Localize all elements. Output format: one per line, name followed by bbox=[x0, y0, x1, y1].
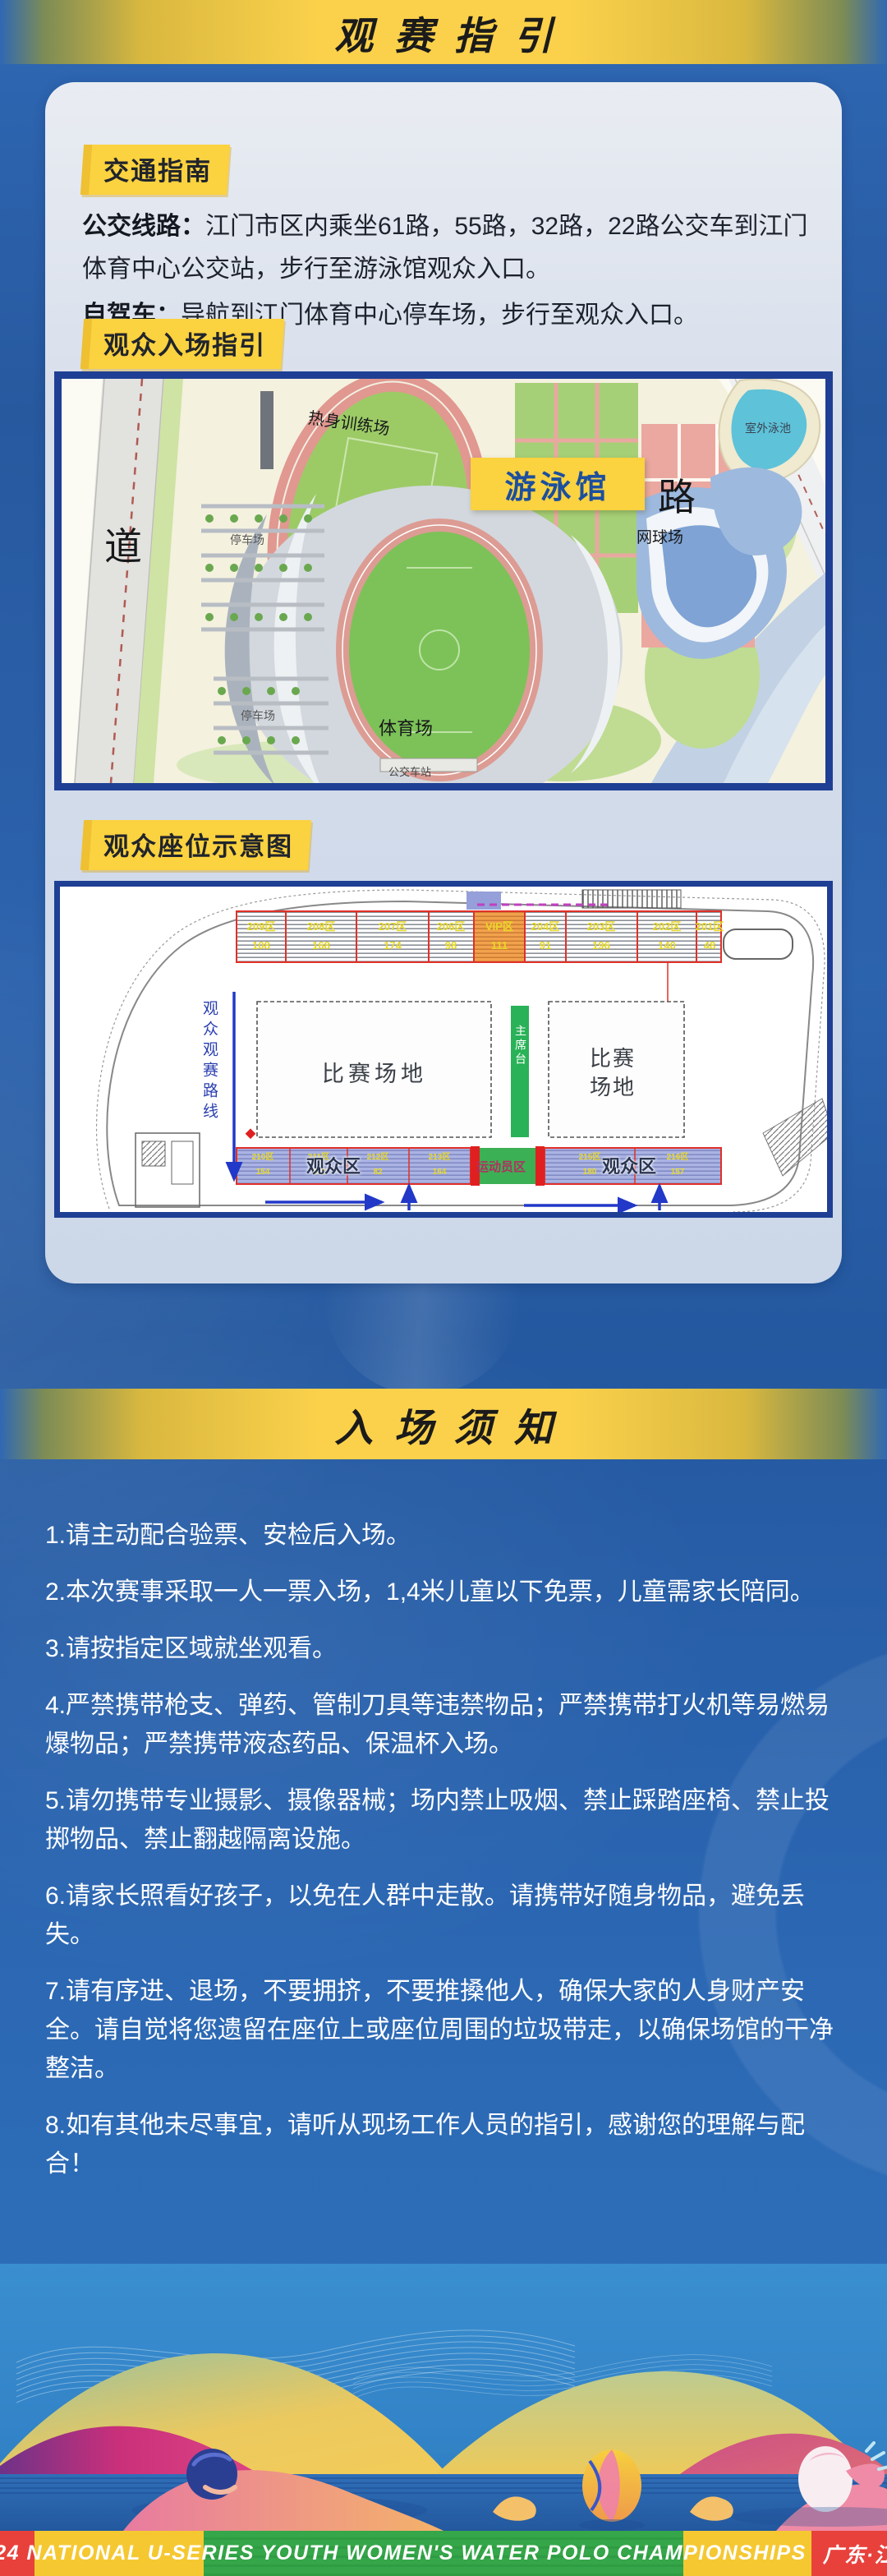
section-203: 203区 bbox=[587, 920, 616, 933]
entrance-guide-label: 观众入场指引 bbox=[80, 319, 284, 369]
water-polo-illustration bbox=[0, 2264, 887, 2531]
rule-item-4: 4.严禁携带枪支、弹药、管制刀具等违禁物品；严禁携带打火机等易燃易爆物品；严禁携… bbox=[45, 1686, 846, 1763]
section-216: 216区 bbox=[667, 1152, 689, 1162]
rule-item-3: 3.请按指定区域就坐观看。 bbox=[45, 1629, 846, 1668]
rule-item-7: 7.请有序进、退场，不要拥挤，不要推搡他人，确保大家的人身财产安全。请自觉将您遗… bbox=[45, 1972, 846, 2088]
svg-text:82: 82 bbox=[373, 1168, 383, 1177]
rule-item-1: 1.请主动配合验票、安检后入场。 bbox=[45, 1516, 846, 1555]
entry-notice-title: 入场须知 bbox=[313, 1396, 573, 1453]
svg-text:168: 168 bbox=[312, 939, 330, 952]
road-right-label: 路 bbox=[658, 468, 696, 522]
footer-title-en: 2024 NATIONAL U-SERIES YOUTH WOMEN'S WAT… bbox=[0, 2541, 807, 2565]
rule-item-8: 8.如有其他未尽事宜，请听从现场工作人员的指引，感谢您的理解与配合！ bbox=[45, 2106, 846, 2183]
section-206: 206区 bbox=[437, 920, 466, 933]
svg-text:174: 174 bbox=[384, 939, 402, 952]
seating-diagram: 209区 108 208区 168 207区 174 206区 98 VIP区 … bbox=[54, 881, 833, 1218]
field-label-left: 比赛场地 bbox=[267, 1056, 482, 1088]
rostrum-label: 主席台 bbox=[512, 1025, 529, 1123]
section-202: 202区 bbox=[653, 920, 682, 933]
viewing-guide-banner: 观赛指引 bbox=[0, 0, 887, 64]
svg-text:91: 91 bbox=[540, 939, 551, 952]
viewing-guide-title: 观赛指引 bbox=[313, 4, 573, 61]
rule-item-2: 2.本次赛事采取一人一票入场，1,4米儿童以下免票，儿童需家长陪同。 bbox=[45, 1573, 846, 1611]
rule-item-6: 6.请家长照看好孩子，以免在人群中走散。请携带好随身物品，避免丢失。 bbox=[45, 1877, 846, 1954]
stadium-label: 体育场 bbox=[379, 714, 433, 740]
section-213: 213区 bbox=[429, 1152, 451, 1162]
outdoor-pool-label: 室外泳池 bbox=[745, 420, 791, 436]
section-212: 212区 bbox=[367, 1152, 389, 1162]
natatorium-badge: 游泳馆 bbox=[471, 458, 645, 510]
parking-label-1: 停车场 bbox=[230, 532, 264, 548]
parking-label-2: 停车场 bbox=[241, 707, 275, 724]
svg-text:154: 154 bbox=[256, 1168, 270, 1177]
guide-card: 交通指南 公交线路：江门市区内乘坐61路，55路，32路，22路公交车到江门体育… bbox=[45, 82, 842, 1283]
rule-item-5: 5.请勿携带专业摄影、摄像器械；场内禁止吸烟、禁止踩踏座椅、禁止投掷物品、禁止翻… bbox=[45, 1781, 846, 1859]
section-207: 207区 bbox=[379, 920, 407, 933]
audience-left-label: 观众区 bbox=[306, 1152, 361, 1178]
footer-bar: 2024 NATIONAL U-SERIES YOUTH WOMEN'S WAT… bbox=[0, 2531, 887, 2576]
tennis-label: 网球场 bbox=[637, 525, 683, 547]
road-left-label: 道 bbox=[104, 517, 142, 571]
seating-diagram-svg: 209区 108 208区 168 207区 174 206区 98 VIP区 … bbox=[60, 887, 827, 1212]
site-map-svg bbox=[62, 379, 825, 783]
section-209: 209区 bbox=[247, 920, 276, 933]
svg-text:48: 48 bbox=[704, 939, 715, 952]
svg-text:111: 111 bbox=[491, 939, 508, 952]
site-map: 道 路 热身训练场 篮球场 网球场 室外泳池 体育场 停车场 停车场 公交车站 … bbox=[54, 371, 833, 790]
section-208: 208区 bbox=[307, 920, 336, 933]
hero-svg bbox=[0, 2264, 887, 2531]
section-215: 215区 bbox=[579, 1152, 601, 1162]
svg-text:180: 180 bbox=[583, 1168, 597, 1177]
bus-route-paragraph: 公交线路：江门市区内乘坐61路，55路，32路，22路公交车到江门体育中心公交站… bbox=[82, 205, 809, 291]
section-vip: VIP区 bbox=[485, 920, 513, 933]
section-210: 210区 bbox=[252, 1152, 274, 1162]
audience-right-label: 观众区 bbox=[602, 1152, 656, 1178]
svg-text:140: 140 bbox=[658, 939, 676, 952]
svg-text:164: 164 bbox=[433, 1168, 447, 1177]
svg-text:196: 196 bbox=[592, 939, 610, 952]
entry-notice-banner: 入场须知 bbox=[0, 1389, 887, 1459]
field-label-right: 比赛场地 bbox=[590, 1044, 642, 1102]
poster-page: 观赛指引 交通指南 公交线路：江门市区内乘坐61路，55路，32路，22路公交车… bbox=[0, 0, 887, 2576]
footer-location: 广东·江门 bbox=[823, 2539, 887, 2569]
svg-text:98: 98 bbox=[445, 939, 457, 952]
entry-rules: 1.请主动配合验票、安检后入场。 2.本次赛事采取一人一票入场，1,4米儿童以下… bbox=[45, 1516, 846, 2201]
svg-text:157: 157 bbox=[671, 1168, 685, 1177]
section-201: 201区 bbox=[696, 920, 724, 933]
seating-diagram-label: 观众座位示意图 bbox=[80, 820, 311, 870]
svg-text:108: 108 bbox=[252, 939, 270, 952]
bus-route-lead: 公交线路： bbox=[82, 213, 205, 240]
traffic-guide-label: 交通指南 bbox=[80, 145, 230, 195]
athlete-area-label: 运动员区 bbox=[476, 1158, 526, 1175]
natatorium-label: 游泳馆 bbox=[504, 462, 610, 507]
section-204: 204区 bbox=[531, 920, 560, 933]
footer-text: 2024 NATIONAL U-SERIES YOUTH WOMEN'S WAT… bbox=[0, 2531, 887, 2576]
bus-station-label: 公交车站 bbox=[388, 763, 431, 779]
route-label: 观众观赛路线 bbox=[198, 1000, 220, 1140]
